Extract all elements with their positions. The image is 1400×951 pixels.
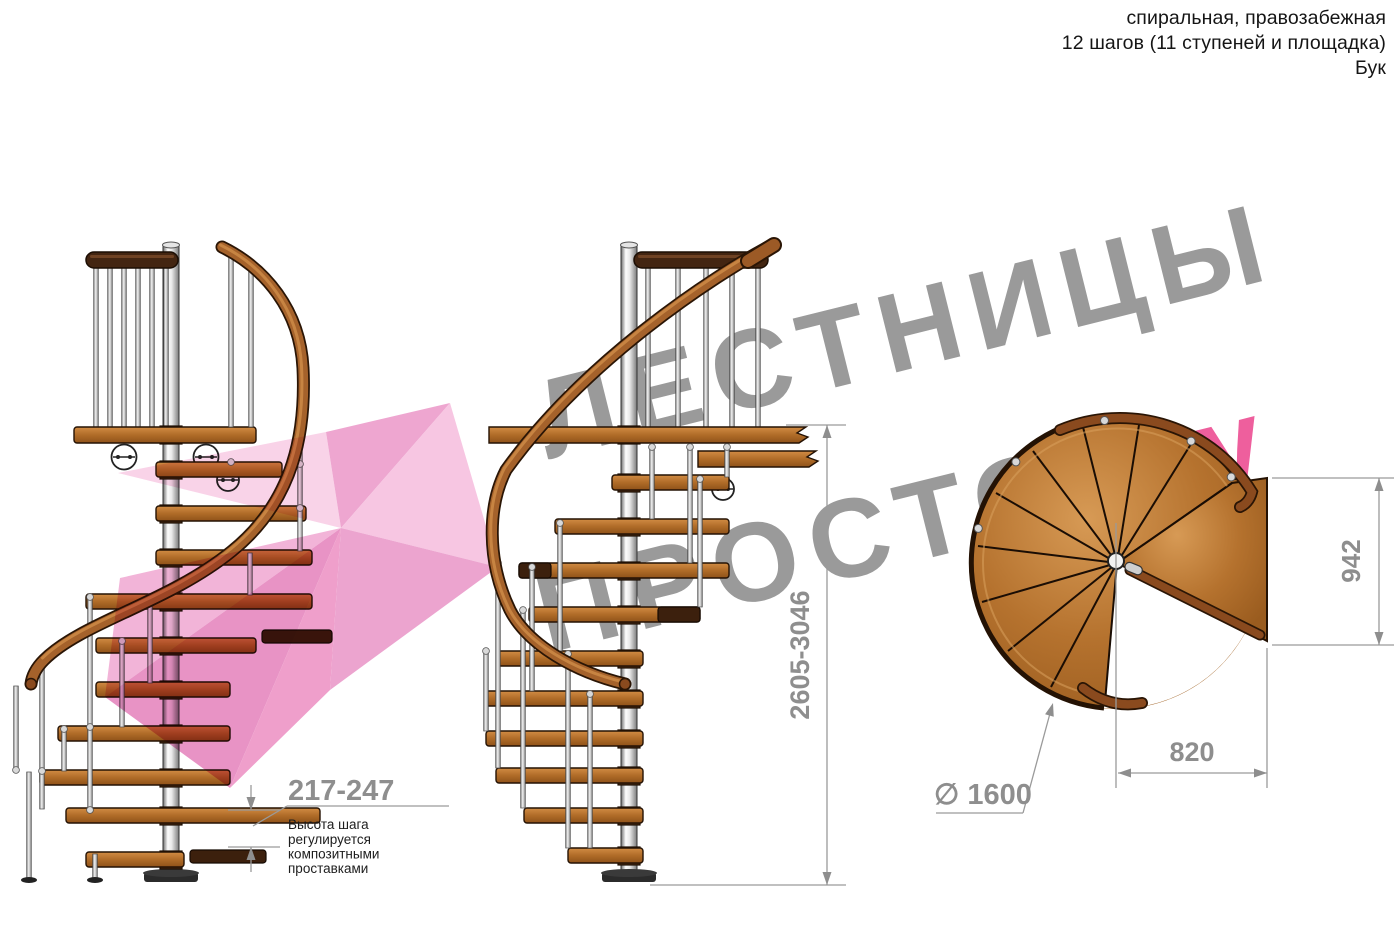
- stair-type-line: спиральная, правозабежная: [1062, 6, 1386, 31]
- staircase-spec-sheet: { "header": { "line1": "спиральная, прав…: [0, 0, 1400, 951]
- dimension-step-height: 217-247 Высота шага регулируется компози…: [228, 775, 449, 876]
- dimension-overall-height: 2605-3046: [650, 425, 846, 885]
- dimension-annotations: 2605-3046 217-247 Высота шага регулирует…: [0, 0, 1400, 951]
- platform-height-label: 942: [1336, 539, 1366, 582]
- step-note-line3: композитными: [288, 847, 379, 862]
- step-height-label: 217-247: [288, 775, 394, 807]
- stair-steps-line: 12 шагов (11 ступеней и площадка): [1062, 31, 1386, 56]
- stair-material-line: Бук: [1062, 56, 1386, 81]
- step-note-line2: регулируется: [288, 832, 371, 847]
- step-note-line4: проставками: [288, 861, 368, 876]
- platform-width-label: 820: [1169, 737, 1214, 767]
- dimension-942: 942: [1272, 478, 1394, 645]
- title-block: спиральная, правозабежная 12 шагов (11 с…: [1062, 6, 1386, 81]
- step-note-line1: Высота шага: [288, 817, 369, 832]
- dimension-820: 820: [1116, 523, 1267, 788]
- diameter-label: ∅ 1600: [934, 779, 1032, 811]
- height-range-label: 2605-3046: [785, 590, 815, 719]
- dimension-diameter: ∅ 1600: [934, 702, 1057, 813]
